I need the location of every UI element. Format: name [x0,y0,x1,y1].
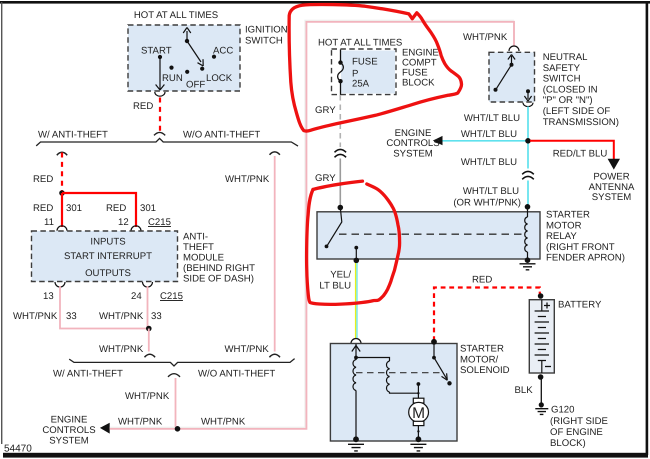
svg-text:SYSTEM: SYSTEM [592,192,631,203]
svg-text:STARTER: STARTER [460,344,504,355]
svg-text:SOLENOID: SOLENOID [460,365,510,376]
svg-text:ENGINE: ENGINE [51,415,88,426]
svg-text:WHT/PNK: WHT/PNK [118,417,163,428]
svg-text:BLOCK: BLOCK [402,78,435,89]
svg-text:RED: RED [472,275,492,286]
svg-text:RED/LT BLU: RED/LT BLU [553,149,608,160]
svg-text:W/ ANTI-THEFT: W/ ANTI-THEFT [53,369,123,380]
svg-text:LOCK: LOCK [206,73,233,84]
svg-text:SYSTEM: SYSTEM [49,436,88,447]
svg-text:11: 11 [44,217,54,228]
svg-text:WHT/PNK: WHT/PNK [13,311,58,322]
svg-text:START: START [141,46,172,57]
svg-text:WHT/LT BLU: WHT/LT BLU [464,113,520,124]
svg-text:GRY: GRY [315,105,336,116]
svg-text:WHT/LT BLU: WHT/LT BLU [461,157,517,168]
svg-text:301: 301 [140,203,156,214]
svg-text:START INTERRUPT: START INTERRUPT [64,251,152,262]
svg-text:(RIGHT FRONT: (RIGHT FRONT [546,242,615,253]
svg-text:TRANSMISSION): TRANSMISSION) [543,117,619,128]
svg-text:BLOCK): BLOCK) [550,438,586,449]
svg-text:RED: RED [133,101,153,112]
svg-text:RED: RED [33,174,53,185]
svg-text:WHT/PNK: WHT/PNK [125,391,170,402]
svg-text:WHT/PNK: WHT/PNK [225,174,270,185]
svg-text:OUTPUTS: OUTPUTS [85,268,131,279]
svg-text:54470: 54470 [4,444,32,455]
svg-text:LT BLU: LT BLU [319,281,351,292]
svg-text:C215: C215 [148,217,171,228]
svg-text:ANTI-: ANTI- [183,232,208,243]
svg-text:SYSTEM: SYSTEM [393,149,432,160]
svg-text:WHT/LT BLU: WHT/LT BLU [463,186,519,197]
svg-text:(BEHIND RIGHT: (BEHIND RIGHT [183,263,255,274]
svg-text:SAFETY: SAFETY [543,63,581,74]
svg-text:SIDE OF DASH): SIDE OF DASH) [183,274,254,285]
svg-text:CONTROLS: CONTROLS [386,138,439,149]
svg-text:W/ ANTI-THEFT: W/ ANTI-THEFT [38,130,108,141]
svg-text:FUSE: FUSE [352,57,378,68]
svg-text:STARTER: STARTER [546,210,590,221]
svg-text:MOTOR/: MOTOR/ [460,354,499,365]
svg-text:THEFT: THEFT [183,242,214,253]
svg-text:NEUTRAL: NEUTRAL [543,52,588,63]
svg-text:HOT AT ALL TIMES: HOT AT ALL TIMES [318,38,402,49]
svg-text:OFF: OFF [186,80,205,91]
svg-text:WHT/PNK: WHT/PNK [225,344,270,355]
svg-text:SWITCH: SWITCH [543,74,581,85]
svg-text:(LEFT SIDE OF: (LEFT SIDE OF [543,106,611,117]
svg-text:13: 13 [43,291,54,302]
svg-text:WHT/PNK: WHT/PNK [201,417,246,428]
svg-text:RED: RED [106,203,126,214]
svg-text:33: 33 [66,311,77,322]
svg-text:CONTROLS: CONTROLS [42,425,95,436]
svg-text:M: M [412,405,425,422]
svg-text:(RIGHT SIDE: (RIGHT SIDE [550,416,608,427]
svg-text:WHT/PNK: WHT/PNK [99,311,144,322]
svg-text:(OR WHT/PNK): (OR WHT/PNK) [453,198,521,209]
svg-text:"P" OR "N"): "P" OR "N") [543,95,593,106]
svg-text:FENDER APRON): FENDER APRON) [546,253,625,264]
svg-text:HOT AT ALL TIMES: HOT AT ALL TIMES [134,10,218,21]
svg-text:GRY: GRY [315,173,336,184]
svg-text:MODULE: MODULE [183,253,224,264]
svg-text:33: 33 [151,311,162,322]
svg-text:12: 12 [118,217,129,228]
svg-text:(CLOSED IN: (CLOSED IN [543,84,598,95]
svg-text:301: 301 [66,203,82,214]
svg-text:G120: G120 [551,405,574,416]
svg-text:YEL/: YEL/ [330,270,351,281]
svg-text:ENGINE: ENGINE [395,128,432,139]
svg-text:ANTENNA: ANTENNA [589,182,635,193]
svg-text:RUN: RUN [162,73,183,84]
svg-text:WHT/PNK: WHT/PNK [99,344,144,355]
svg-text:24: 24 [131,291,142,302]
svg-text:C215: C215 [160,291,183,302]
svg-text:WHT/LT BLU: WHT/LT BLU [461,129,517,140]
svg-text:POWER: POWER [593,171,629,182]
svg-text:W/O ANTI-THEFT: W/O ANTI-THEFT [198,369,275,380]
svg-text:RELAY: RELAY [546,231,577,242]
svg-text:BLK: BLK [515,385,534,396]
svg-text:SWITCH: SWITCH [245,36,283,47]
svg-text:BATTERY: BATTERY [558,300,602,311]
svg-text:INPUTS: INPUTS [90,237,125,248]
svg-text:ACC: ACC [213,46,233,57]
svg-text:OF ENGINE: OF ENGINE [550,427,603,438]
svg-text:W/O ANTI-THEFT: W/O ANTI-THEFT [183,130,260,141]
svg-text:WHT/PNK: WHT/PNK [463,32,508,43]
svg-text:MOTOR: MOTOR [546,220,582,231]
svg-text:RED: RED [33,203,53,214]
svg-text:25A: 25A [352,79,370,90]
svg-text:IGNITION: IGNITION [245,25,288,36]
